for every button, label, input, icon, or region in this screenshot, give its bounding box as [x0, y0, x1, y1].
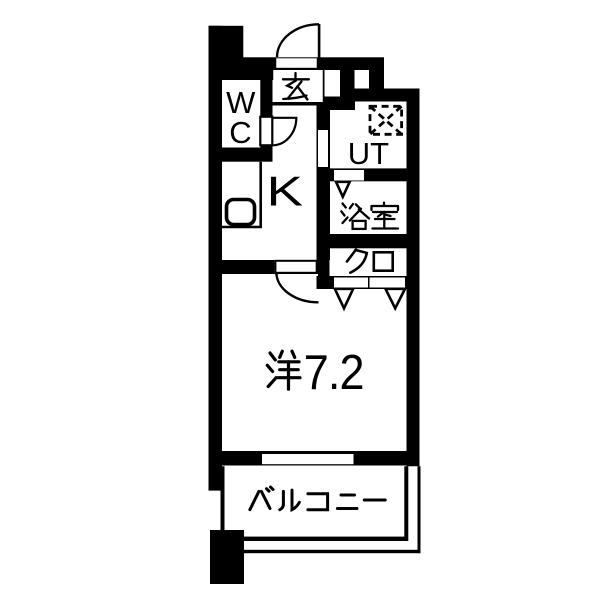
svg-text:7.2: 7.2 [304, 344, 364, 399]
svg-text:UT: UT [348, 136, 389, 171]
svg-text:K: K [267, 168, 304, 215]
svg-text:C: C [229, 115, 251, 150]
